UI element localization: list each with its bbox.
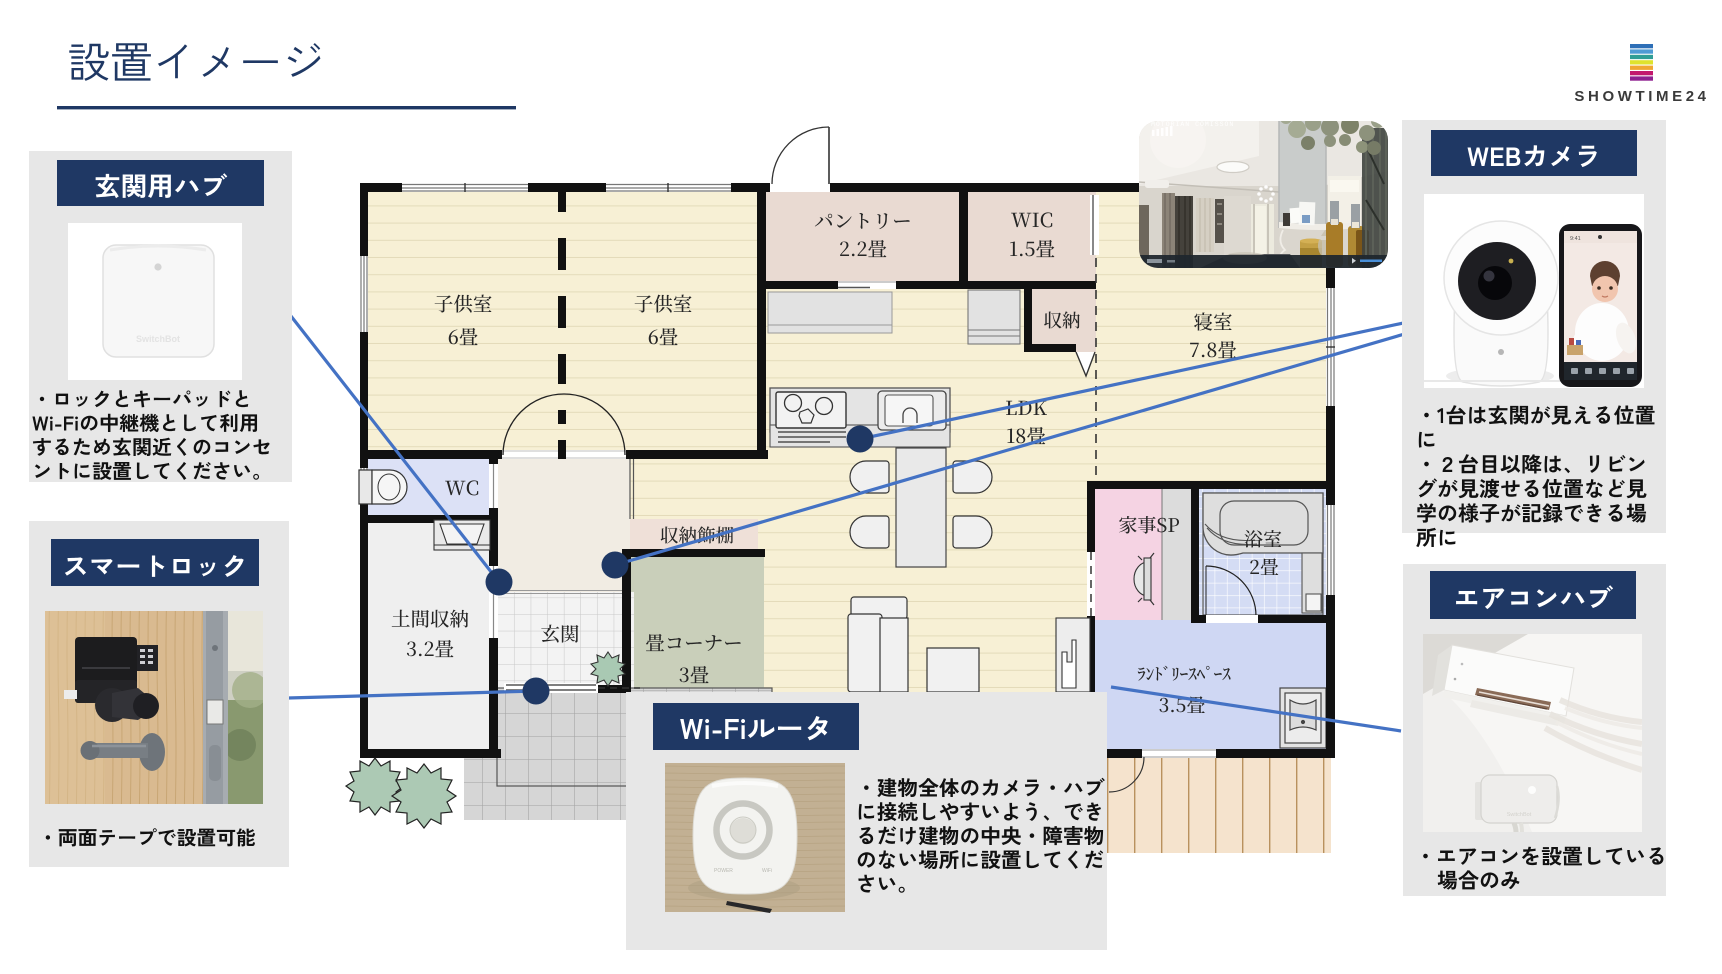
svg-text:SwitchBot: SwitchBot bbox=[136, 334, 180, 344]
svg-text:SwitchBot: SwitchBot bbox=[1507, 812, 1532, 818]
svg-text:SHOWTIME24: SHOWTIME24 bbox=[1574, 88, 1709, 105]
svg-text:POWER: POWER bbox=[714, 868, 733, 874]
svg-text:WiFi: WiFi bbox=[762, 868, 772, 874]
svg-text:9:41: 9:41 bbox=[1570, 236, 1581, 242]
svg-text:MOTORIAN COMISSON: MOTORIAN COMISSON bbox=[1151, 121, 1234, 128]
